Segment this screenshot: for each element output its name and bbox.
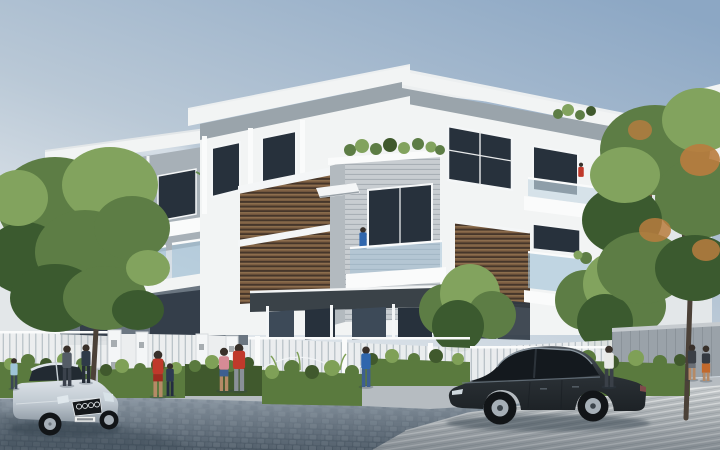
- balcony-person-blue-middle-villa: [359, 227, 366, 248]
- window-2f: [533, 224, 580, 254]
- orange-foliage: [639, 218, 671, 242]
- orange-foliage: [692, 239, 720, 261]
- door-handle: [572, 386, 579, 388]
- orange-foliage: [628, 120, 652, 140]
- scene-svg: [0, 0, 720, 450]
- window-third-floor: [448, 126, 512, 190]
- balcony-person-red-main-villa: [578, 163, 584, 177]
- render-viewport: [0, 0, 720, 450]
- window: [212, 142, 240, 197]
- door-handle: [540, 388, 547, 390]
- orange-foliage: [680, 144, 720, 176]
